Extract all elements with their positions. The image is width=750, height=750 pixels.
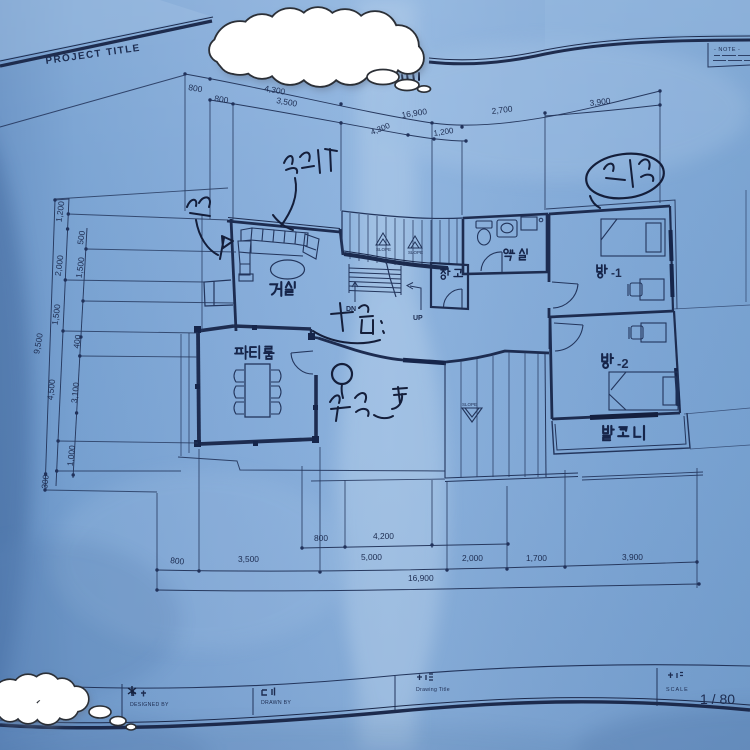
svg-text:300: 300 (39, 474, 50, 489)
svg-text:-2: -2 (617, 356, 629, 371)
svg-text:2,000: 2,000 (462, 553, 483, 563)
svg-text:16,900: 16,900 (408, 573, 434, 583)
svg-text:SLOPE: SLOPE (462, 402, 477, 407)
svg-text:UP: UP (413, 315, 423, 322)
svg-text:SLOPE: SLOPE (408, 250, 423, 255)
svg-text:400: 400 (71, 334, 83, 350)
svg-text:500: 500 (75, 230, 87, 246)
svg-text:3,900: 3,900 (622, 552, 643, 562)
svg-text:800: 800 (170, 555, 185, 566)
svg-text:800: 800 (314, 533, 328, 543)
svg-text:Drawing Title: Drawing Title (416, 687, 450, 693)
svg-text:1 / 80: 1 / 80 (700, 691, 735, 707)
svg-text:- NOTE -: - NOTE - (714, 47, 740, 53)
svg-text:SCALE: SCALE (666, 687, 689, 693)
svg-text:3,500: 3,500 (238, 554, 259, 564)
svg-text:DESIGNED BY: DESIGNED BY (130, 702, 169, 708)
svg-text:4,200: 4,200 (373, 531, 394, 541)
svg-text:-1: -1 (611, 266, 622, 280)
svg-text:SLOPE: SLOPE (376, 247, 391, 252)
svg-text:5,000: 5,000 (361, 552, 382, 562)
svg-text:DRAWN BY: DRAWN BY (261, 700, 291, 706)
svg-text:1,700: 1,700 (526, 553, 547, 563)
